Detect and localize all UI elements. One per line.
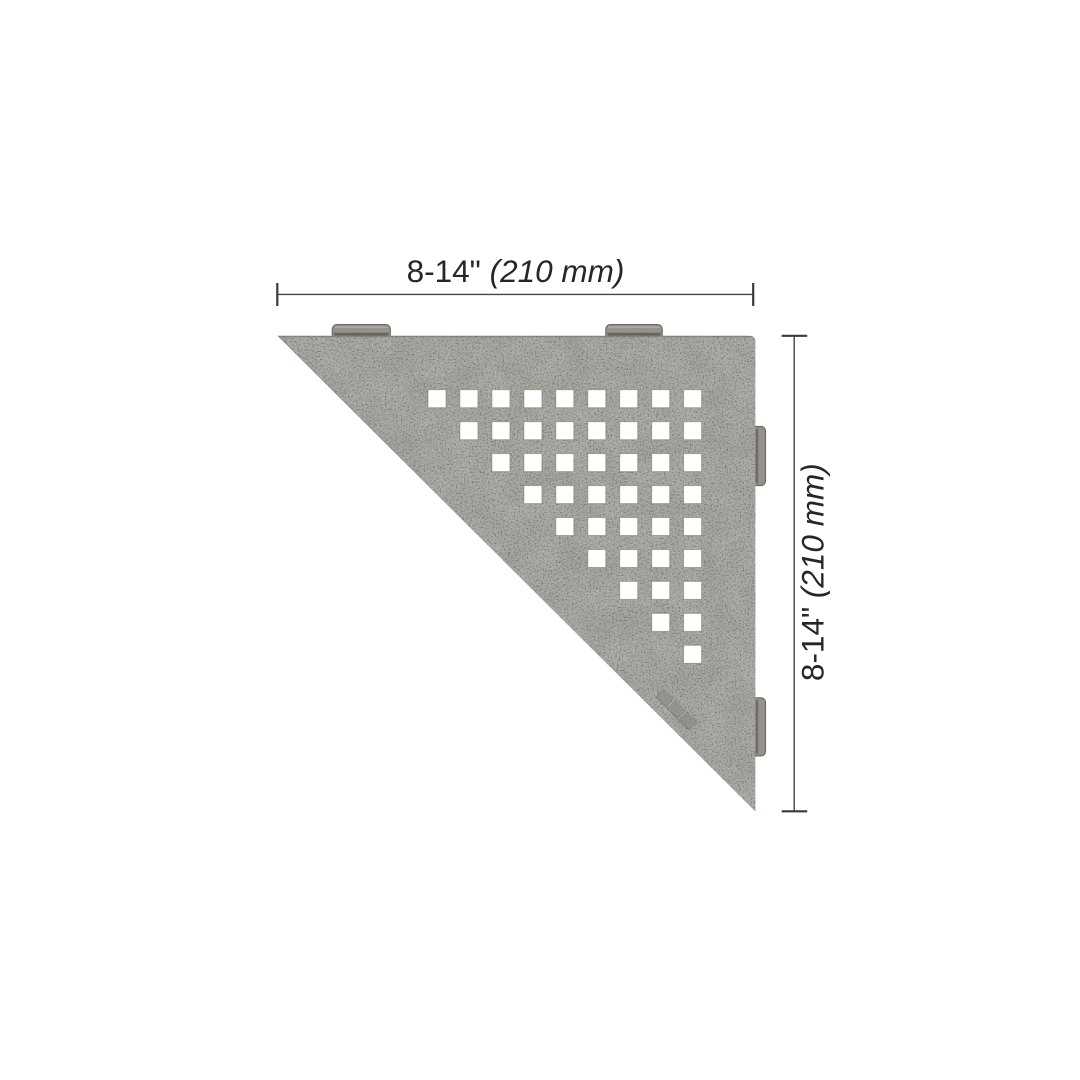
svg-text:8-14" (210 mm): 8-14" (210 mm) <box>795 463 831 681</box>
svg-text:8-14" (210 mm): 8-14" (210 mm) <box>407 253 625 289</box>
